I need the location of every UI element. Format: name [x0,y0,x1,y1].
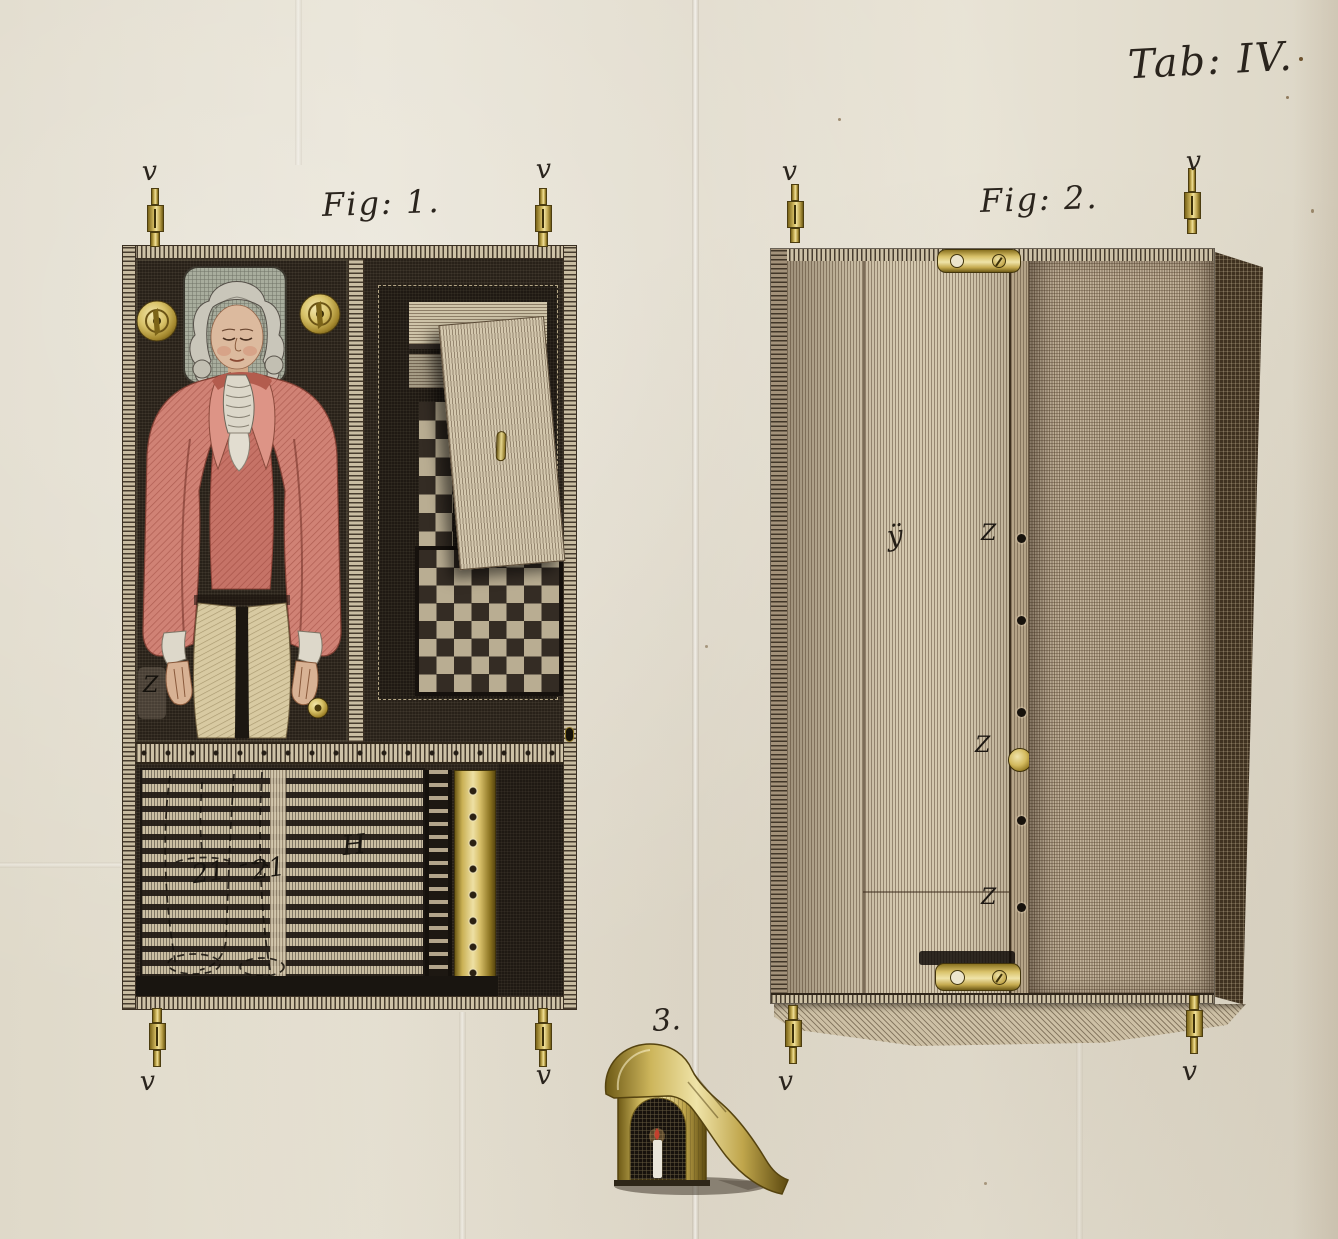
drawer-label-21-right: 21 [250,852,287,886]
fig1-cabinet-front: Z [122,245,577,1010]
paper-crease [0,862,128,868]
fig2-left-band [771,249,787,1003]
door-shading [787,261,1009,993]
hinge-plate-bottom [935,963,1021,991]
pipe-holes [468,779,478,983]
hinge-label: v [141,156,158,188]
hinge-label: v [1185,146,1202,178]
fig1-frame-bottom [122,996,577,1010]
fig1-caption: Fig: 1. [321,182,441,224]
drawer-section: 21 21 H [136,764,563,996]
hinge [785,184,805,243]
fig2-underside [774,1004,1246,1046]
fig2-knob-label-bottom: Z [981,885,996,910]
fig2-side-panel [1215,252,1263,1012]
fig1-interior-label: Z [143,673,158,698]
hinge [145,188,165,247]
door-handle [496,431,507,461]
fig2-back-panel [1029,261,1214,993]
door-plank-seam [863,261,865,993]
paper-edge-shade [1292,0,1338,1239]
hinge [533,188,553,247]
latch-button [1017,534,1026,543]
reclining-figure-illustration [136,259,348,742]
hinge-plate-top [937,249,1021,273]
paper-crease [459,1012,466,1239]
door-panel [438,316,565,570]
paper-crease [295,0,302,165]
paper-speck [1286,96,1289,99]
machinery-compartment [364,259,563,742]
paper-speck [984,1182,987,1185]
fig2-door-label: ÿ [885,518,904,552]
fig1-frame-left [122,245,136,1010]
plate-title: Tab: IV. [1127,34,1295,89]
latch-button [1017,816,1026,825]
fig1-rail [136,742,563,764]
paper-speck [1311,209,1314,213]
fig1-divider-post [348,259,364,742]
paper-speck [838,118,841,121]
latch-button [1017,616,1026,625]
paper-speck [705,645,708,648]
dark-panel [498,764,563,996]
screw [950,970,965,985]
lantern-illustration [598,1030,793,1205]
fig2-knob-label-middle: Z [975,733,990,758]
fig2-door: ÿ [787,261,1009,993]
drawer-label-21-left: 21 [190,856,227,890]
paper-crease [1076,1040,1083,1239]
ladder-strip [425,770,452,978]
recess [378,285,558,700]
fig2-seam-strip [1009,261,1029,993]
fig2-front: ÿ Z [770,248,1215,1004]
hinge [533,1008,553,1067]
engraved-plate: Tab: IV. Fig: 1. Fig: 2. 3. [0,0,1338,1239]
hinge-label: v [535,154,552,186]
screw [992,254,1006,268]
hinge-label: v [535,1060,552,1092]
fig1-frame-top [122,245,577,259]
hinge-label: v [781,156,798,188]
chessboard [419,550,559,692]
fig1-frame-right [563,245,577,1010]
keyhole [565,727,574,742]
hinge-label: v [1181,1056,1198,1088]
brass-pipe [454,770,496,992]
hinge-label: v [139,1066,156,1098]
fig3-lantern [598,1030,793,1205]
fig2-bottom-band [771,993,1214,1003]
hinge [1182,168,1202,234]
figure-compartment: Z [136,259,348,742]
screw [992,970,1007,985]
fig2-caption: Fig: 2. [979,178,1099,220]
fig1-interior: Z [136,259,563,996]
fig2-knob-label-top: Z [981,521,996,546]
latch-button [1017,708,1026,717]
chessboard-frame [415,546,563,696]
rail-studs [136,744,563,762]
hinge [1184,995,1204,1054]
screw [950,254,964,268]
fig2-cabinet-back: ÿ Z [770,246,1268,1048]
paper-speck [1299,57,1303,61]
drawer-base [136,976,498,996]
hinge [147,1008,167,1067]
latch-button [1017,903,1026,912]
drawer-label-H: H [340,829,367,862]
